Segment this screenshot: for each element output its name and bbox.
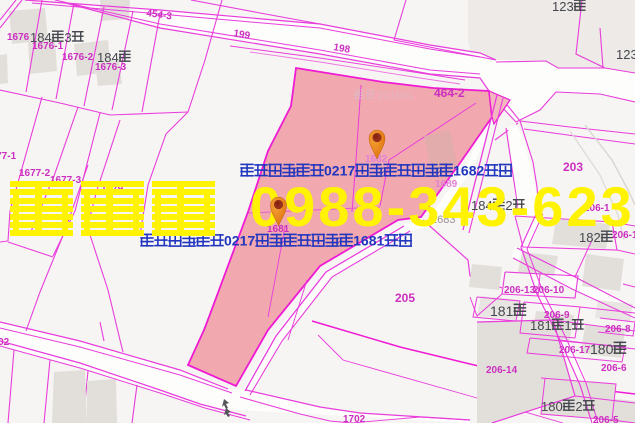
svg-text:184: 184 — [97, 50, 119, 65]
svg-text:181: 181 — [490, 303, 514, 319]
svg-text:464-2: 464-2 — [434, 86, 465, 100]
svg-text:206-13: 206-13 — [504, 285, 536, 296]
svg-text:206-10: 206-10 — [533, 285, 565, 296]
svg-text:1702: 1702 — [343, 414, 366, 423]
svg-text:1702: 1702 — [0, 337, 10, 348]
svg-text:206-14: 206-14 — [486, 365, 518, 376]
svg-text:1676: 1676 — [7, 32, 30, 43]
svg-text:206-5: 206-5 — [593, 415, 619, 423]
svg-text:206-17: 206-17 — [559, 345, 591, 356]
svg-text:1677-2: 1677-2 — [19, 168, 51, 179]
svg-text:180: 180 — [590, 341, 614, 357]
svg-text:206-8: 206-8 — [605, 324, 631, 335]
svg-text:1676-2: 1676-2 — [62, 52, 94, 63]
svg-text:205: 205 — [395, 291, 415, 305]
svg-text:3: 3 — [64, 30, 71, 45]
svg-text:123: 123 — [552, 0, 574, 14]
svg-text:1: 1 — [564, 318, 571, 333]
svg-text:206-6: 206-6 — [601, 363, 627, 374]
svg-text:201601: 201601 — [377, 90, 414, 102]
svg-text:0988-343-623: 0988-343-623 — [250, 175, 635, 238]
svg-text:2: 2 — [575, 399, 582, 414]
svg-text:180: 180 — [541, 399, 563, 414]
svg-text:203: 203 — [563, 160, 583, 174]
svg-text:184: 184 — [30, 30, 52, 45]
svg-text:123: 123 — [616, 47, 635, 62]
svg-text:181: 181 — [530, 318, 552, 333]
svg-text:1677-1: 1677-1 — [0, 151, 17, 162]
